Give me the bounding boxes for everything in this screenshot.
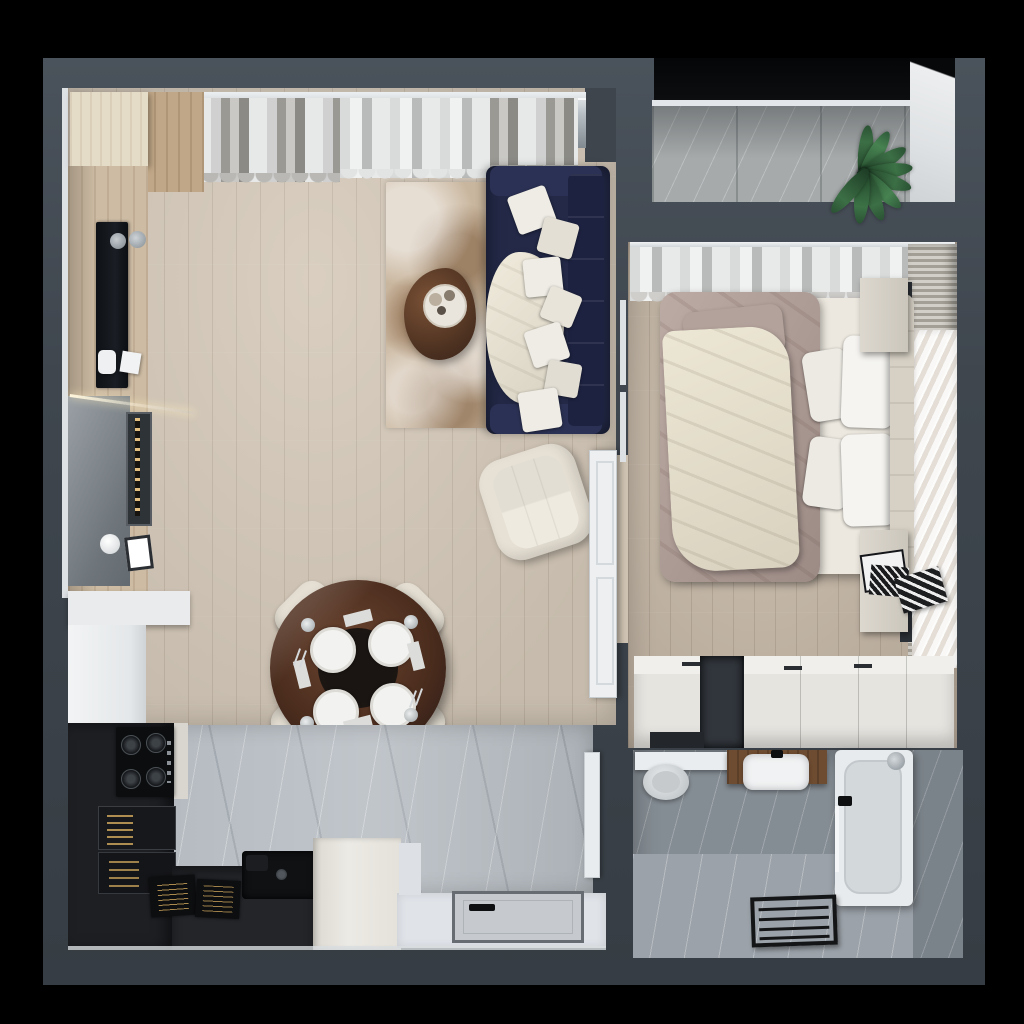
nightstand xyxy=(860,278,908,352)
towel-ladder xyxy=(750,895,838,948)
towel-bar xyxy=(760,935,830,940)
toilet-seat xyxy=(652,771,680,793)
bathroom-right-wall xyxy=(913,750,963,958)
table-lamp xyxy=(100,534,120,554)
bathroom-door xyxy=(584,752,600,878)
glass-screen xyxy=(835,806,839,872)
bathtub-inner xyxy=(844,760,902,894)
kitchen-cabinet-side xyxy=(174,723,188,799)
wardrobe-open-section xyxy=(700,656,744,748)
glass xyxy=(301,618,315,632)
potted-plant xyxy=(822,140,942,202)
concrete-accent-panel xyxy=(68,396,130,586)
open-door xyxy=(589,450,617,698)
bed-pillow xyxy=(840,433,895,527)
decor-light-column xyxy=(126,412,152,526)
shelf-glow xyxy=(109,857,139,887)
kitchen-sink xyxy=(242,851,316,899)
panoramic-window xyxy=(654,58,912,102)
wardrobe-shadow xyxy=(650,732,704,748)
hallway-wall xyxy=(399,843,421,895)
bedspread xyxy=(662,325,800,573)
glass xyxy=(404,708,418,722)
kitchen-countertop xyxy=(68,591,190,625)
wall-speaker xyxy=(110,233,126,249)
wardrobe-handle xyxy=(854,664,872,668)
burner xyxy=(121,735,141,755)
decor-box xyxy=(119,351,141,375)
door-molding xyxy=(596,577,614,685)
towel-bar xyxy=(759,906,829,911)
plate xyxy=(310,627,356,673)
cook-book xyxy=(149,874,198,917)
door-molding xyxy=(596,461,614,565)
towel-bar xyxy=(759,916,829,921)
wardrobe-handle xyxy=(784,666,802,670)
shelf-glow xyxy=(107,811,133,845)
sofa-pillow xyxy=(517,387,563,433)
door-handle xyxy=(469,904,495,911)
living-curtain-gray-2 xyxy=(490,98,578,174)
toilet xyxy=(643,764,689,800)
bathtub xyxy=(835,750,913,906)
balcony xyxy=(652,58,955,202)
burner xyxy=(146,767,166,787)
bedroom-door-frame xyxy=(620,300,626,385)
refrigerator-cabinet xyxy=(68,625,146,725)
wardrobe-divider xyxy=(858,656,859,748)
window-sill xyxy=(652,100,914,106)
candle xyxy=(437,306,446,315)
shower-head xyxy=(887,752,905,770)
glass xyxy=(404,615,418,629)
sink-faucet xyxy=(246,855,268,871)
wall-column xyxy=(585,88,616,162)
basin-faucet xyxy=(771,750,783,758)
burner xyxy=(121,769,141,789)
sofa xyxy=(486,166,610,434)
sink-drain xyxy=(276,869,287,880)
apartment-floorplan-render xyxy=(0,0,1024,1024)
wardrobe-divider xyxy=(906,656,907,748)
cup xyxy=(429,293,442,306)
tub-faucet xyxy=(838,796,852,806)
cook-book-text xyxy=(157,881,189,911)
wall-speaker xyxy=(129,231,146,248)
bathroom-shelf xyxy=(635,752,731,770)
feather-wall-mural xyxy=(912,330,957,668)
entrance-door xyxy=(452,891,584,943)
decor-basket xyxy=(98,350,116,374)
gas-hob xyxy=(116,727,174,797)
wardrobe-handle xyxy=(682,662,700,666)
entry-wood-cabinet xyxy=(70,92,148,166)
white-base-cabinet xyxy=(313,838,401,950)
bathroom xyxy=(633,750,963,958)
basin xyxy=(743,754,809,790)
cook-book xyxy=(195,879,241,919)
burner xyxy=(146,733,166,753)
towel-bar xyxy=(759,926,829,931)
bedroom-door-frame xyxy=(620,392,626,462)
cook-book-text xyxy=(202,885,233,913)
cup xyxy=(444,290,455,301)
light-column-glow xyxy=(135,418,140,516)
living-curtain-white xyxy=(340,98,490,178)
illuminated-shelf xyxy=(98,806,176,850)
hob-knobs xyxy=(167,741,171,783)
bottom-wall-trim xyxy=(68,946,606,950)
wardrobe-divider xyxy=(742,656,743,748)
photo-frame xyxy=(124,535,154,572)
